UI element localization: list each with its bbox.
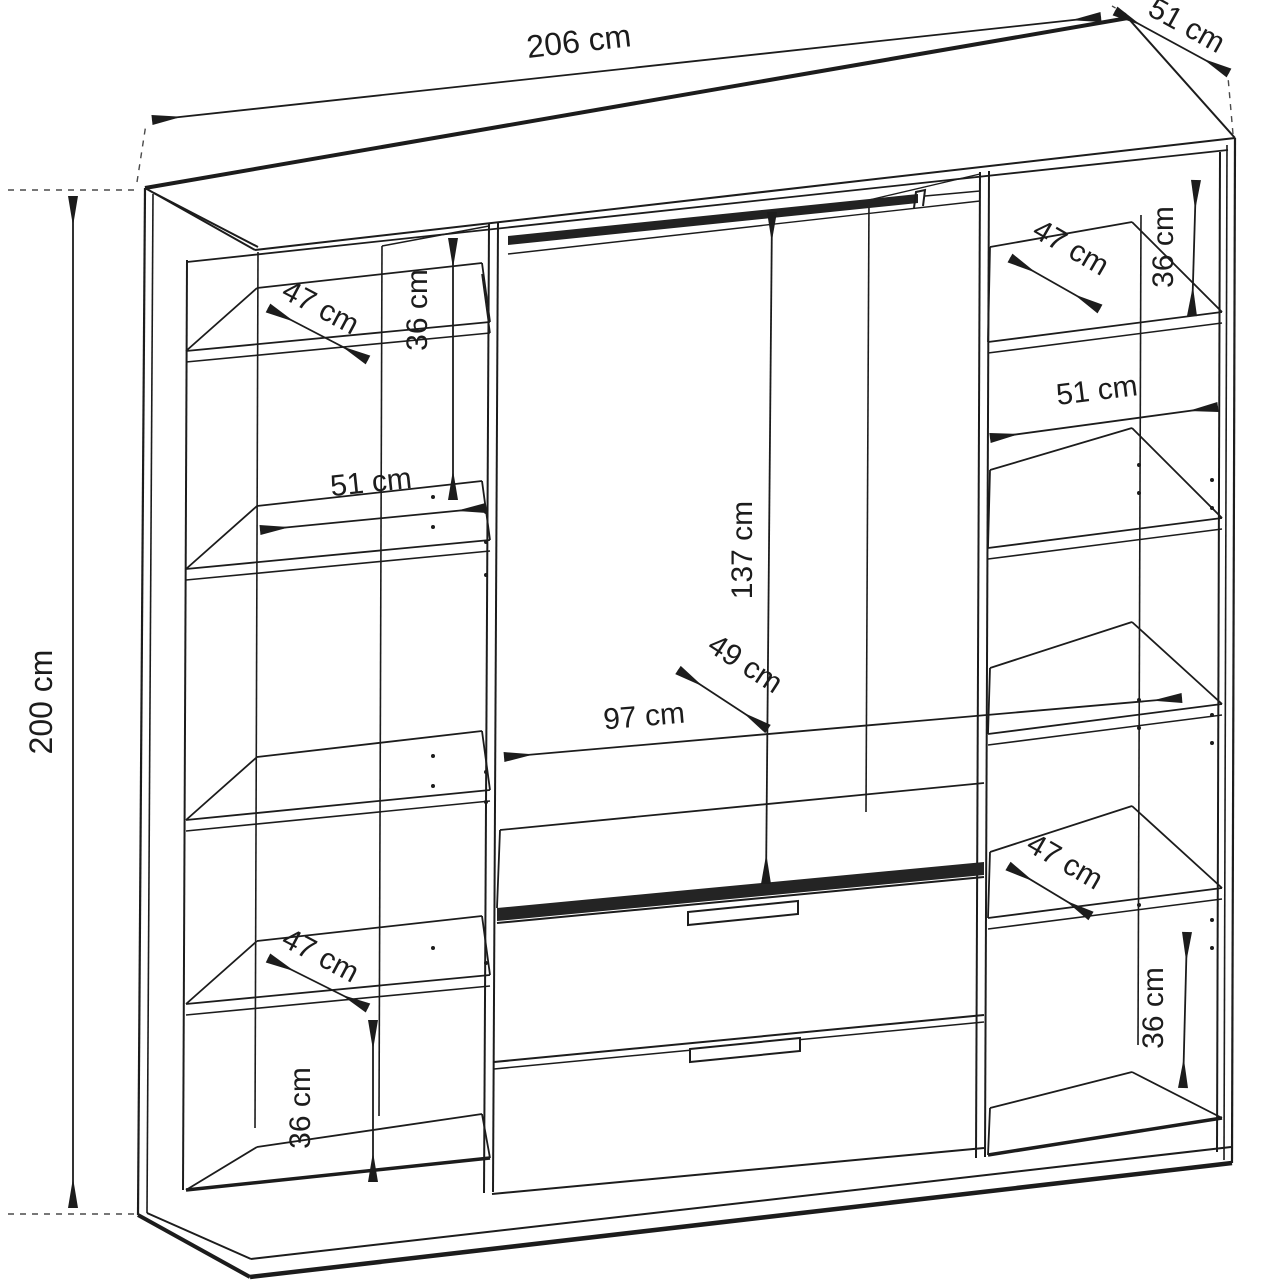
label-left-top-gap: 36 cm [401, 269, 434, 351]
label-right-top-gap: 36 cm [1147, 206, 1180, 288]
label-overall-height: 200 cm [23, 650, 59, 755]
label-hanging-height: 137 cm [726, 501, 759, 599]
label-right-bottom-gap: 36 cm [1137, 967, 1170, 1049]
wardrobe-technical-drawing: 206 cm 51 cm 200 cm 36 cm 47 cm 51 cm 47… [0, 0, 1280, 1280]
background [0, 0, 1280, 1280]
label-left-bottom-gap: 36 cm [284, 1067, 317, 1149]
drawing-canvas: 206 cm 51 cm 200 cm 36 cm 47 cm 51 cm 47… [0, 0, 1280, 1280]
